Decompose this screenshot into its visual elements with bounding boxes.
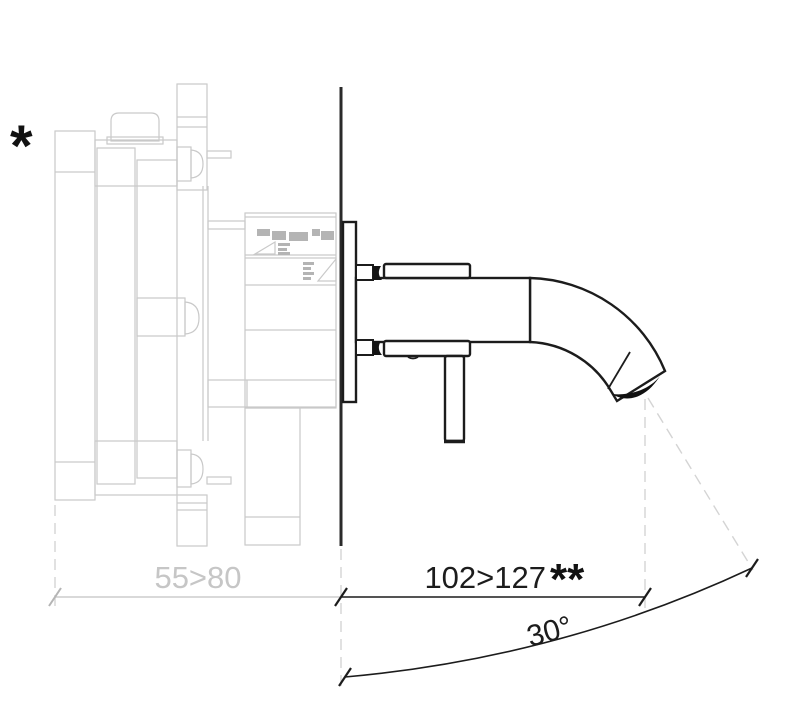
lower-inlet-stub [95,441,231,495]
spout-angle-reference [648,398,753,570]
footnote-star: * [10,114,33,179]
wall-escutcheon-plate [343,222,356,402]
dimension-recess-depth: 55>80 [49,560,341,606]
upper-flange [384,264,470,278]
upper-mount-step [356,265,373,280]
spout-curve [530,278,665,401]
dimension-spout-projection: 102>127 ** [335,555,651,606]
spout-projection-label: 102>127 [424,560,546,595]
technical-drawing-page: 55>80 102>127 ** 30° * [0,0,800,720]
middle-outlet-stub [137,298,199,336]
angle-dimension-30: 30° [339,559,758,686]
recess-depth-label: 55>80 [154,560,241,595]
double-star-footnote: ** [550,555,585,604]
cartridge-housing [208,213,336,408]
lower-flange [384,341,470,356]
spout-angle-label: 30° [523,610,575,654]
faucet-technical-drawing: 55>80 102>127 ** 30° * [0,0,800,720]
lower-housing-box [245,408,300,545]
concealed-valve-body [55,84,336,546]
spout-body [356,278,530,342]
spout-assembly [343,222,665,442]
top-supply-tube [177,84,207,190]
lower-mount-step [356,340,373,355]
lever-handle [445,356,464,441]
lower-housing-band [208,380,336,407]
upper-inlet-stub [95,140,231,186]
